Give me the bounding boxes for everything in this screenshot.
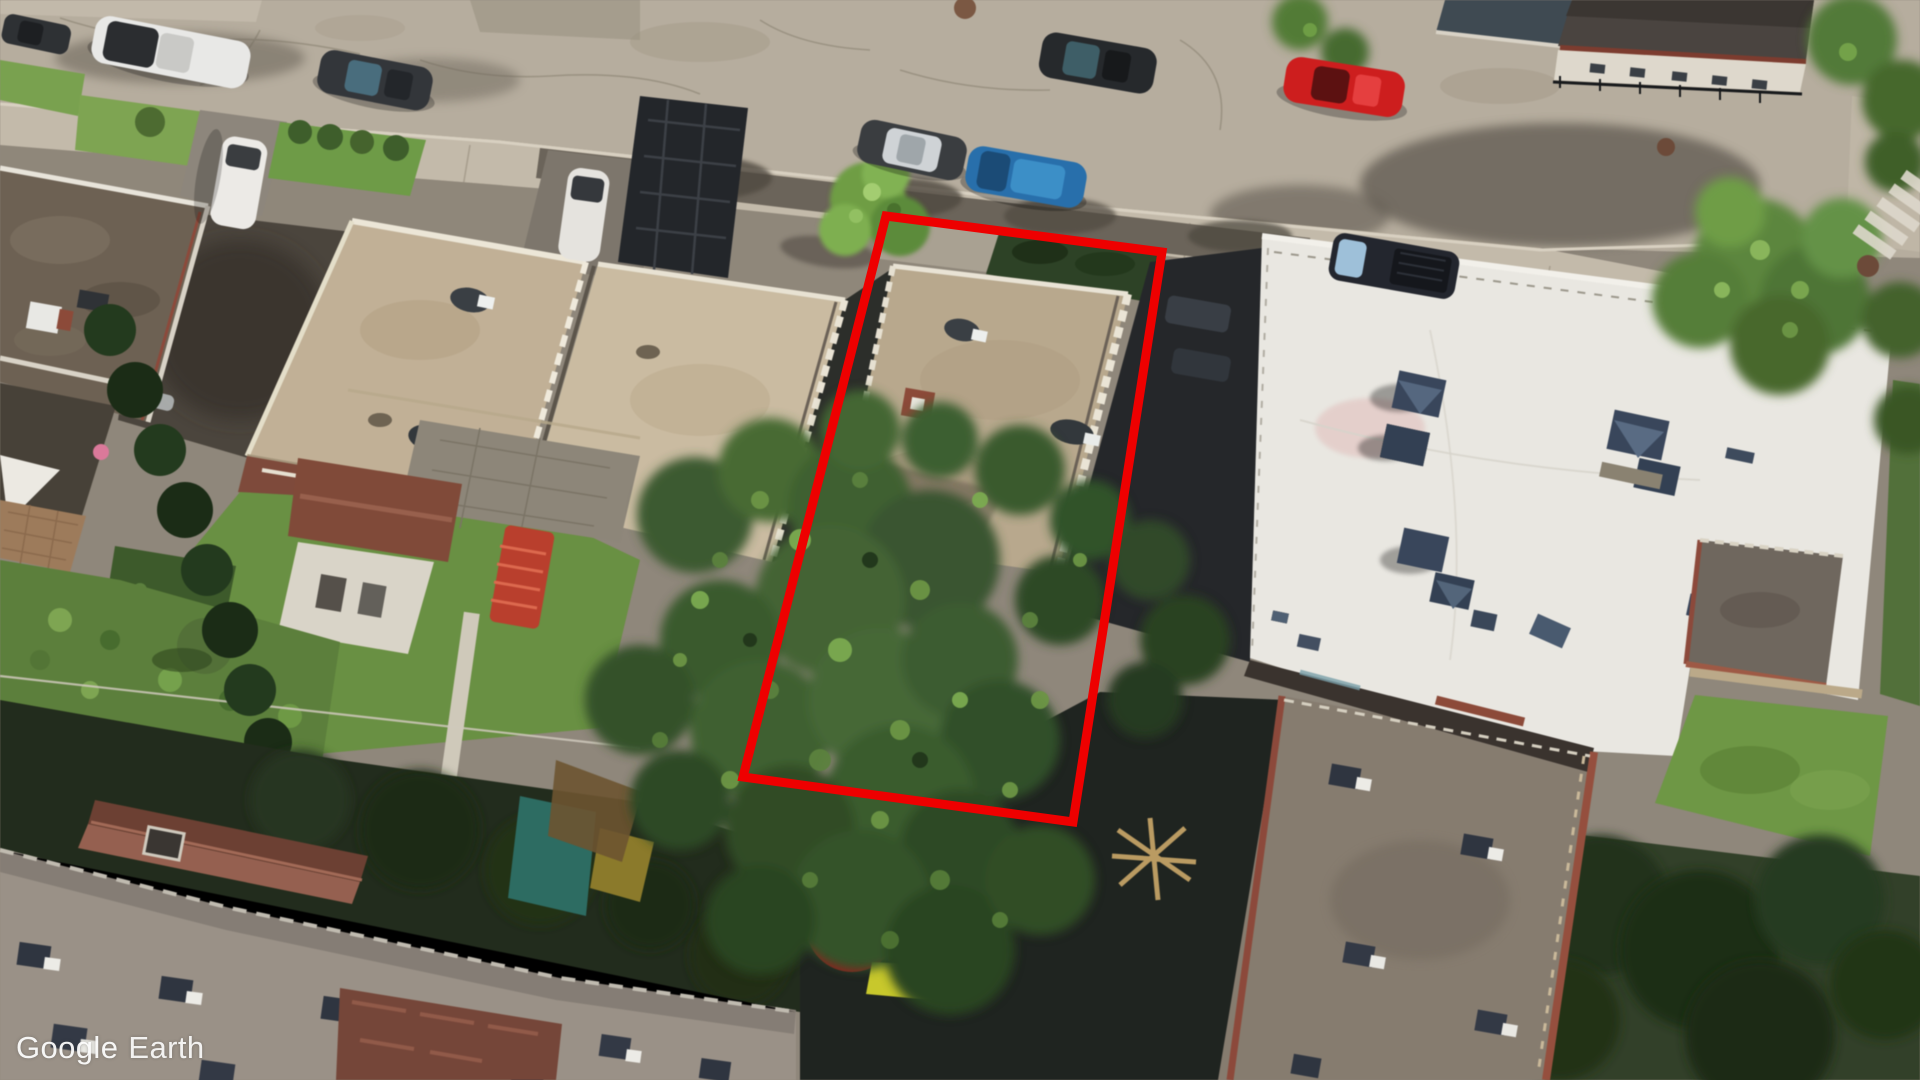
google-earth-canvas[interactable]: GoogleEarth	[0, 0, 1920, 1080]
manhole	[1857, 255, 1879, 277]
watermark-brand: Google	[16, 1030, 118, 1066]
google-earth-watermark: GoogleEarth	[16, 1030, 204, 1066]
watermark-product: Earth	[128, 1030, 204, 1066]
aerial-imagery[interactable]	[0, 0, 1920, 1080]
manhole	[1657, 138, 1675, 156]
